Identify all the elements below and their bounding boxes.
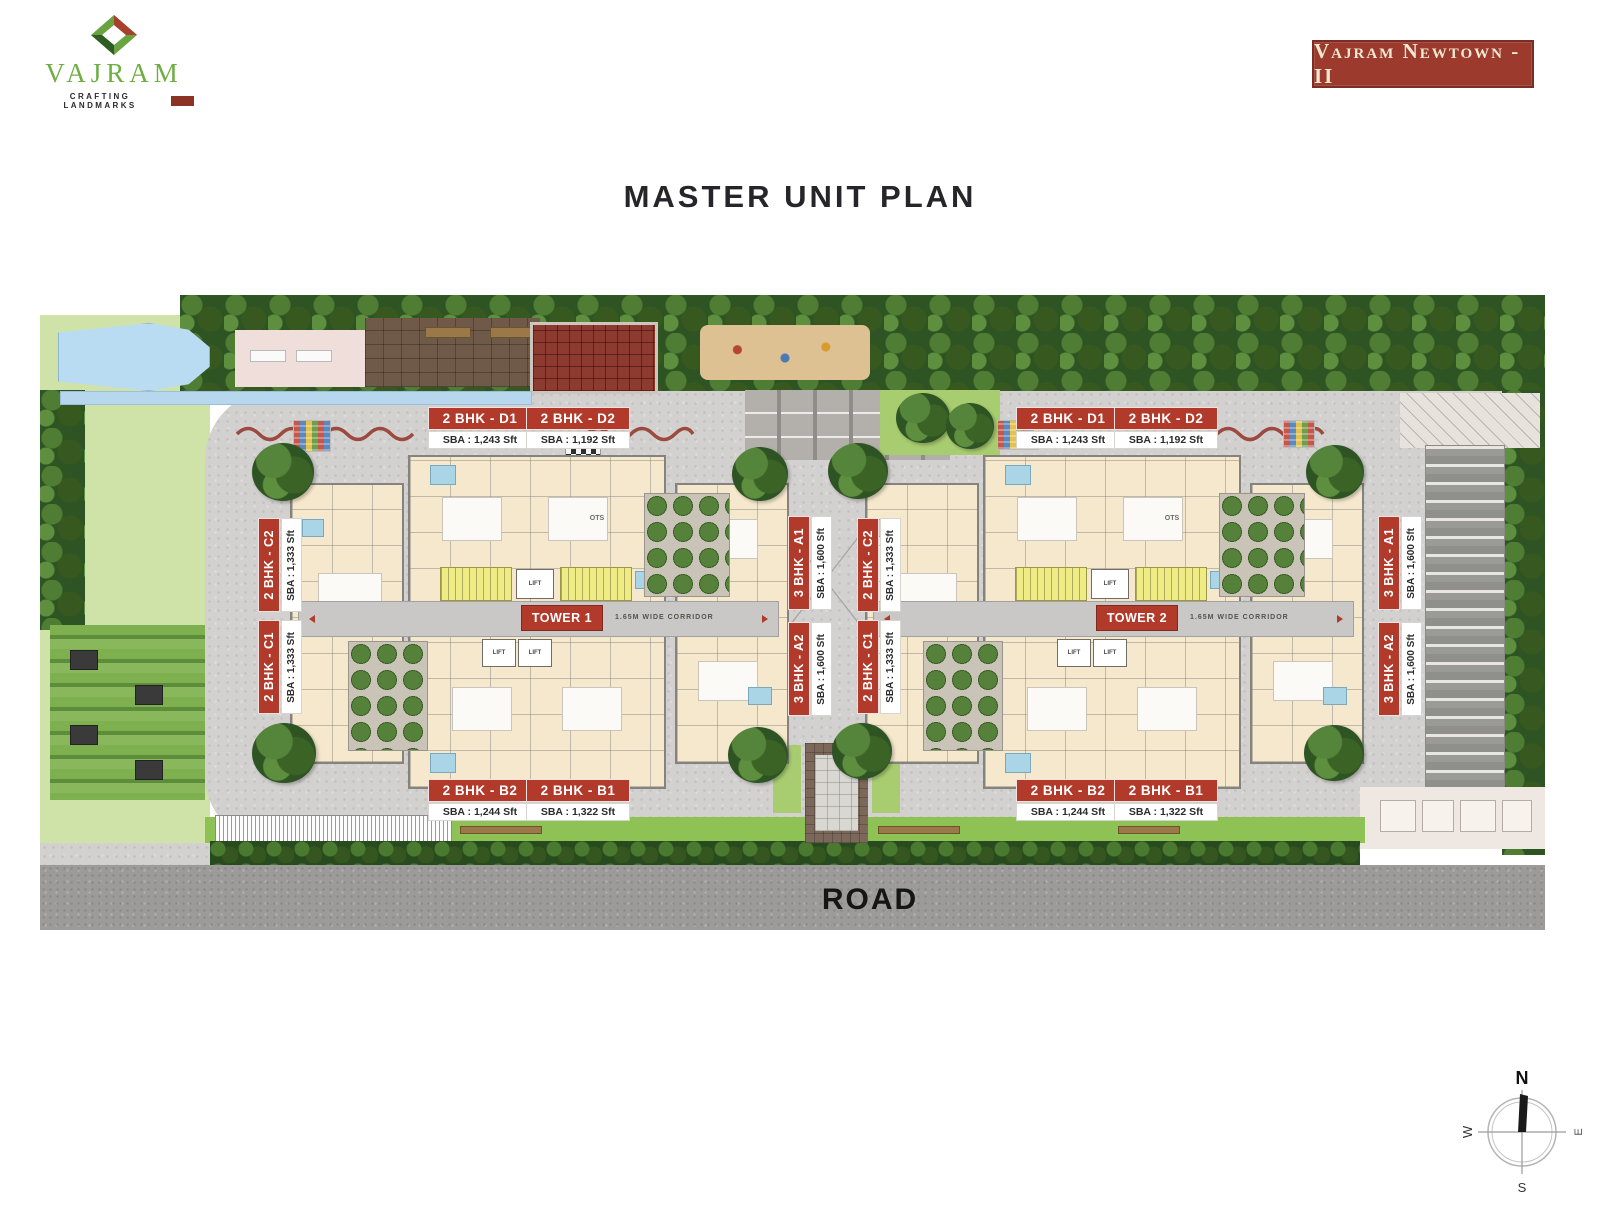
bathroom [302,519,324,537]
room [562,687,622,731]
lift-shaft: LIFT [516,569,554,599]
unit-label-t2-d2: 2 BHK - D2 SBA : 1,192 Sft [1114,407,1218,449]
lift-shaft: LIFT [1093,639,1127,667]
unit-label-t1-d2: 2 BHK - D2 SBA : 1,192 Sft [526,407,630,449]
corridor-width-note: 1.65M WIDE CORRIDOR [1190,614,1289,621]
unit-sba: SBA : 1,333 Sft [880,620,901,714]
unit-label-t2-d1: 2 BHK - D1 SBA : 1,243 Sft [1016,407,1120,449]
unit-label-t2-a2: 3 BHK - A2 SBA : 1,600 Sft [1378,622,1422,716]
unit-type: 2 BHK - C1 [857,620,879,714]
site-plan: LIFT TOWER 1 1.65M WIDE CORRIDOR LIFT LI… [40,295,1545,930]
lift-label: LIFT [529,581,542,587]
lift-label: LIFT [1068,650,1081,656]
unit-sba: SBA : 1,244 Sft [428,803,532,821]
unit-type: 2 BHK - B1 [1114,779,1218,802]
lift-shaft: LIFT [518,639,552,667]
corridor-arrow [762,615,768,623]
unit-type: 2 BHK - B2 [428,779,532,802]
courtyard-shrubs [1219,493,1305,597]
tower-2-name-label: TOWER 2 [1096,605,1178,631]
tree [828,443,888,499]
deck-bench [425,327,471,338]
unit-type: 2 BHK - D1 [1016,407,1120,430]
room [1137,687,1197,731]
courtyard-shrubs [923,641,1003,751]
room [442,497,502,541]
unit-label-t1-b2: 2 BHK - B2 SBA : 1,244 Sft [428,779,532,821]
splash-pool [58,323,210,391]
parking-stalls [1425,445,1505,807]
compass-east: E [1573,1128,1585,1135]
staircase [440,567,512,601]
utility-building [1460,800,1496,832]
vajram-diamond-icon [90,14,138,56]
utility-building [1380,800,1416,832]
unit-type: 2 BHK - C1 [258,620,280,714]
unit-sba: SBA : 1,192 Sft [1114,431,1218,449]
unit-sba: SBA : 1,600 Sft [811,516,832,610]
tree [732,447,788,501]
master-unit-plan-page: VAJRAM CRAFTING LANDMARKS Vajram Newtown… [0,0,1600,1211]
unit-type: 3 BHK - A2 [1378,622,1400,716]
tree [252,723,316,783]
bathroom [1323,687,1347,705]
utility-building [1422,800,1454,832]
bathroom [748,687,772,705]
unit-label-t1-c1: 2 BHK - C1 SBA : 1,333 Sft [258,620,302,714]
lift-label: LIFT [529,650,542,656]
project-name-badge: Vajram Newtown -II [1312,40,1534,88]
unit-sba: SBA : 1,333 Sft [880,518,901,612]
lawn-bench [460,826,542,834]
plaza-bench [250,350,286,362]
planter-box [135,685,163,705]
unit-type: 2 BHK - D2 [526,407,630,430]
lawn-bench [1118,826,1180,834]
compass-rose: N S W E [1452,1068,1592,1196]
logo-wordmark: VAJRAM [34,58,194,89]
unit-label-t2-b2: 2 BHK - B2 SBA : 1,244 Sft [1016,779,1120,821]
room [1017,497,1077,541]
compass-needle [1518,1094,1528,1132]
road: ROAD [40,865,1545,930]
unit-label-t1-a2: 3 BHK - A2 SBA : 1,600 Sft [788,622,832,716]
ots-label: OTS [580,515,614,522]
ramp-pavement [1400,393,1540,448]
unit-type: 2 BHK - D1 [428,407,532,430]
unit-label-t2-a1: 3 BHK - A1 SBA : 1,600 Sft [1378,516,1422,610]
unit-label-t2-c2: 2 BHK - C2 SBA : 1,333 Sft [857,518,901,612]
unit-sba: SBA : 1,333 Sft [281,518,302,612]
staircase [1135,567,1207,601]
tree [252,443,314,501]
tree [728,727,788,783]
tower-2-corridor: TOWER 2 1.65M WIDE CORRIDOR [873,601,1354,637]
unit-label-t1-b1: 2 BHK - B1 SBA : 1,322 Sft [526,779,630,821]
project-name-text: Vajram Newtown -II [1314,39,1532,89]
unit-label-t1-c2: 2 BHK - C2 SBA : 1,333 Sft [258,518,302,612]
clubhouse-roof [530,322,658,394]
bathroom [430,753,456,773]
planter-box [70,725,98,745]
courtyard-shrubs [348,641,428,751]
plaza-bench [296,350,332,362]
planter-box [70,650,98,670]
staircase [1015,567,1087,601]
unit-sba: SBA : 1,322 Sft [1114,803,1218,821]
play-area-sandpit [700,325,870,380]
unit-sba: SBA : 1,600 Sft [1401,516,1422,610]
unit-sba: SBA : 1,192 Sft [526,431,630,449]
courtyard-shrubs [644,493,730,597]
lift-shaft: LIFT [482,639,516,667]
corridor-arrow [1337,615,1343,623]
right-tree-strip [1502,390,1545,855]
vajram-logo: VAJRAM CRAFTING LANDMARKS [34,14,194,110]
unit-label-t1-a1: 3 BHK - A1 SBA : 1,600 Sft [788,516,832,610]
bathroom [1005,465,1031,485]
unit-sba: SBA : 1,244 Sft [1016,803,1120,821]
tower-2-building: LIFT TOWER 2 1.65M WIDE CORRIDOR LIFT LI… [865,455,1360,795]
unit-type: 3 BHK - A1 [788,516,810,610]
logo-tagline-text: CRAFTING LANDMARKS [34,92,166,110]
water-channel [60,391,532,405]
staircase [560,567,632,601]
pergola-seating [215,815,452,842]
unit-sba: SBA : 1,243 Sft [1016,431,1120,449]
lift-label: LIFT [1104,581,1117,587]
compass-west: W [1460,1125,1475,1138]
unit-type: 3 BHK - A1 [1378,516,1400,610]
room [452,687,512,731]
tree [1304,725,1364,781]
tree [1306,445,1364,499]
tower-1-corridor: TOWER 1 1.65M WIDE CORRIDOR [298,601,779,637]
lift-label: LIFT [1104,650,1117,656]
unit-sba: SBA : 1,243 Sft [428,431,532,449]
unit-label-t2-c1: 2 BHK - C1 SBA : 1,333 Sft [857,620,901,714]
mosaic-court [1283,420,1315,448]
corridor-arrow [309,615,315,623]
utility-building [1502,800,1532,832]
unit-sba: SBA : 1,600 Sft [1401,622,1422,716]
page-title: MASTER UNIT PLAN [0,179,1600,215]
lift-label: LIFT [493,650,506,656]
logo-tagline-block [171,96,194,106]
unit-type: 2 BHK - C2 [258,518,280,612]
ots-label: OTS [1155,515,1189,522]
tree [896,393,950,443]
compass-south: S [1518,1180,1527,1195]
unit-sba: SBA : 1,333 Sft [281,620,302,714]
room [1027,687,1087,731]
lawn-bench [878,826,960,834]
corridor-width-note: 1.65M WIDE CORRIDOR [615,614,714,621]
unit-type: 2 BHK - C2 [857,518,879,612]
bathroom [430,465,456,485]
boundary-hedge [210,841,1360,865]
unit-label-t2-b1: 2 BHK - B1 SBA : 1,322 Sft [1114,779,1218,821]
unit-type: 2 BHK - B2 [1016,779,1120,802]
lift-shaft: LIFT [1091,569,1129,599]
unit-sba: SBA : 1,322 Sft [526,803,630,821]
tree [832,723,892,779]
left-tree-strip [40,390,85,630]
tower-1-building: LIFT TOWER 1 1.65M WIDE CORRIDOR LIFT LI… [290,455,785,795]
unit-type: 2 BHK - D2 [1114,407,1218,430]
road-label: ROAD [770,883,970,917]
lift-shaft: LIFT [1057,639,1091,667]
road-edge-pavement [40,843,210,865]
compass: N S W E [1452,1068,1592,1196]
compass-north: N [1516,1068,1529,1088]
tree [946,403,994,449]
logo-tagline: CRAFTING LANDMARKS [34,92,194,110]
planter-box [135,760,163,780]
tower-1-name-label: TOWER 1 [521,605,603,631]
unit-sba: SBA : 1,600 Sft [811,622,832,716]
unit-type: 2 BHK - B1 [526,779,630,802]
unit-label-t1-d1: 2 BHK - D1 SBA : 1,243 Sft [428,407,532,449]
unit-type: 3 BHK - A2 [788,622,810,716]
bathroom [1005,753,1031,773]
